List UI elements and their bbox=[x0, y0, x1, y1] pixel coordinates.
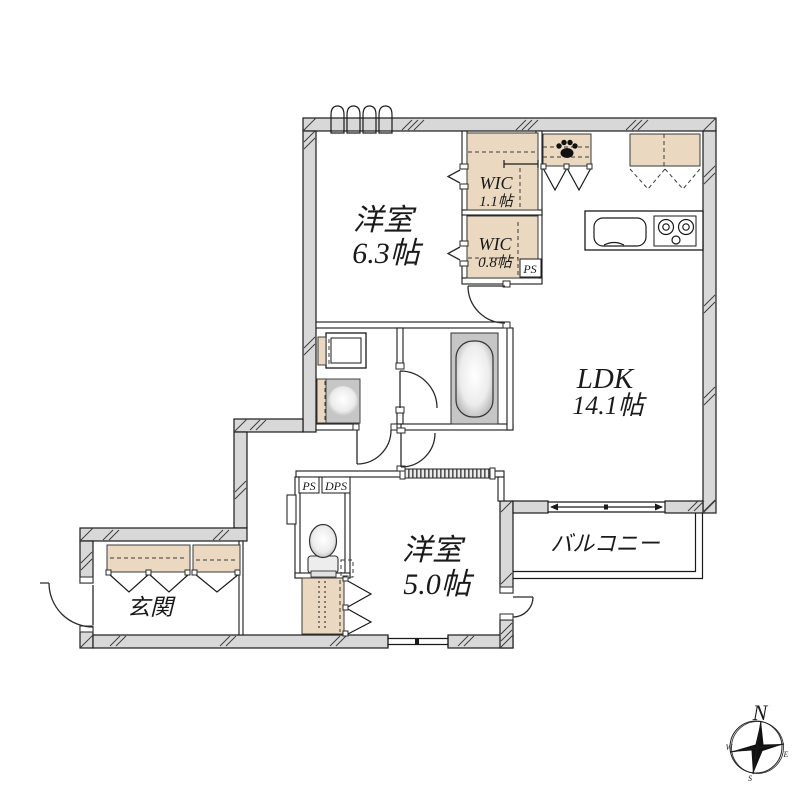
pet-closet bbox=[541, 134, 592, 190]
washroom-door bbox=[353, 424, 397, 464]
wic-large-name-label: WIC bbox=[480, 173, 514, 193]
entrance-door bbox=[40, 577, 93, 632]
floor-plan-page: 洋室 6.3帖 WIC 1.1帖 WIC 0.8帖 LDK 14.1帖 洋室 5… bbox=[0, 0, 800, 800]
compass-east-label: E bbox=[783, 750, 789, 759]
wic-small-name-label: WIC bbox=[479, 234, 513, 254]
bedroom-b-closet bbox=[302, 576, 371, 636]
bedroom-a-name-label: 洋室 bbox=[353, 204, 417, 237]
wic-large-area-label: 1.1帖 bbox=[479, 193, 515, 210]
bedroom-b-door bbox=[397, 428, 435, 471]
bathroom-door bbox=[396, 363, 437, 413]
bedroom-b-sliding-door bbox=[400, 468, 495, 479]
ldk-area-label: 14.1帖 bbox=[572, 391, 648, 420]
bathtub bbox=[451, 333, 498, 424]
kitchen-closet bbox=[630, 134, 700, 189]
compass: N W E S bbox=[726, 700, 789, 783]
balcony-corner-door bbox=[500, 587, 533, 620]
wic-opening-arrows bbox=[448, 170, 460, 260]
kitchen-counter bbox=[585, 211, 703, 250]
wic-ps-label: PS bbox=[522, 262, 536, 276]
washbasin bbox=[317, 379, 360, 423]
balcony-label: バルコニー bbox=[550, 531, 661, 556]
compass-west-label: W bbox=[726, 743, 734, 752]
kitchen-sink-icon bbox=[594, 218, 646, 246]
balcony-sliding-window bbox=[548, 502, 665, 512]
wic-small-area-label: 0.8帖 bbox=[478, 254, 514, 271]
hall-ps-label: PS bbox=[301, 479, 315, 493]
bedroom-a-door bbox=[468, 281, 510, 328]
toilet-door-leaf bbox=[287, 495, 296, 524]
stove-icon bbox=[654, 216, 696, 246]
compass-north-label: N bbox=[752, 700, 769, 725]
washing-machine-pan bbox=[318, 333, 366, 368]
entrance-label: 玄関 bbox=[127, 595, 176, 620]
bedroom-b-area-label: 5.0帖 bbox=[403, 568, 475, 601]
hall-dps-label: DPS bbox=[324, 479, 347, 493]
compass-south-label: S bbox=[748, 774, 752, 783]
entrance-closets bbox=[106, 545, 240, 592]
bedroom-a-area-label: 6.3帖 bbox=[352, 237, 424, 270]
floor-plan-drawing: 洋室 6.3帖 WIC 1.1帖 WIC 0.8帖 LDK 14.1帖 洋室 5… bbox=[0, 0, 800, 800]
bedroom-b-window bbox=[388, 636, 448, 647]
bedroom-b-name-label: 洋室 bbox=[402, 534, 466, 567]
